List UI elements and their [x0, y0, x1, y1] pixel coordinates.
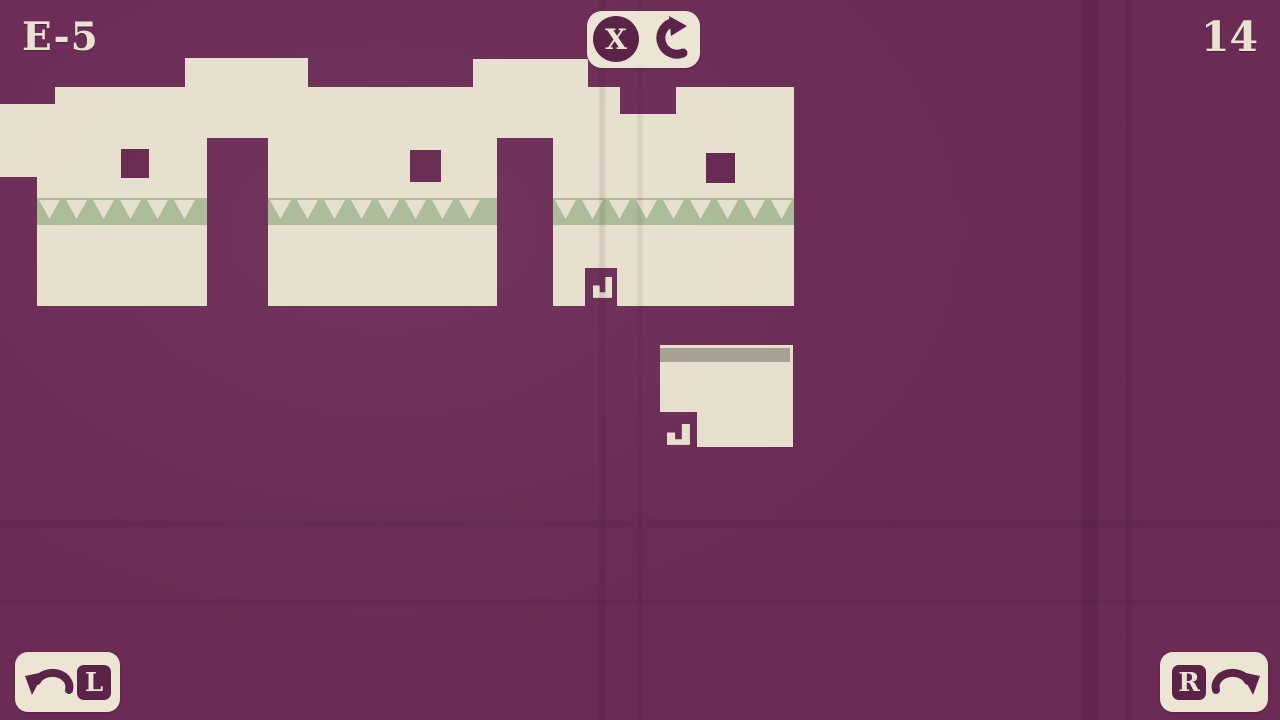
rotate-ccw-arrow-icon	[23, 662, 75, 704]
r-key-label: R	[1178, 668, 1200, 698]
r-key-badge: R	[1172, 665, 1206, 700]
rotate-left-button[interactable]: L	[15, 652, 120, 712]
board-svg	[0, 0, 1280, 720]
restart-button[interactable]: X	[587, 11, 700, 68]
x-key-label: X	[605, 23, 627, 56]
terrain-hole	[410, 150, 441, 182]
game-stage: E-5 14 X L R	[0, 0, 1280, 720]
move-counter: 14	[1201, 13, 1258, 61]
rotate-cw-icon	[643, 15, 691, 65]
level-label: E-5	[22, 14, 99, 60]
hook-icon	[593, 277, 612, 298]
terrain	[0, 58, 794, 306]
l-key-badge: L	[77, 665, 111, 700]
hook-icon	[667, 424, 690, 445]
terrain-hole	[121, 149, 149, 178]
rotate-cw-arrow-icon	[1210, 662, 1262, 704]
rotate-right-button[interactable]: R	[1160, 652, 1268, 712]
x-key-badge: X	[593, 16, 639, 62]
l-key-label: L	[85, 668, 103, 698]
terrain-hole	[706, 153, 735, 183]
block-top-strip	[660, 348, 790, 362]
